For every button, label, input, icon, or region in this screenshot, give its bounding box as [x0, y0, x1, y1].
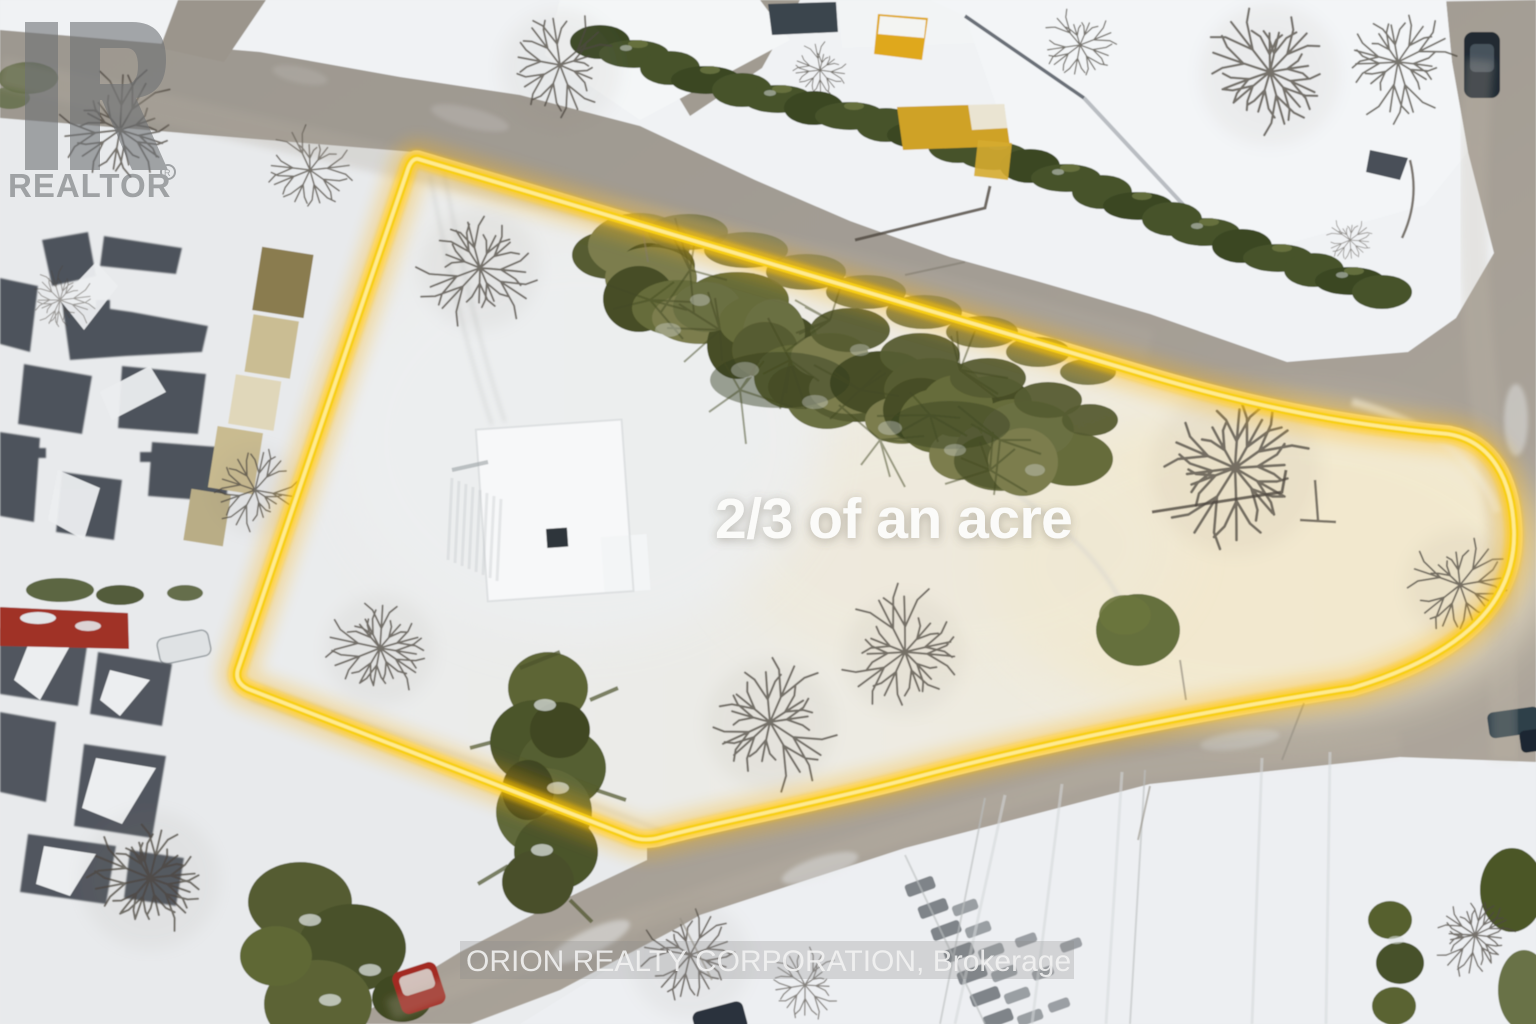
svg-text:R: R — [164, 168, 171, 178]
svg-text:ORION REALTY CORPORATION, Brok: ORION REALTY CORPORATION, Brokerage — [466, 945, 1071, 978]
svg-text:REALTOR: REALTOR — [8, 167, 171, 204]
svg-text:2/3 of an acre: 2/3 of an acre — [715, 487, 1072, 551]
